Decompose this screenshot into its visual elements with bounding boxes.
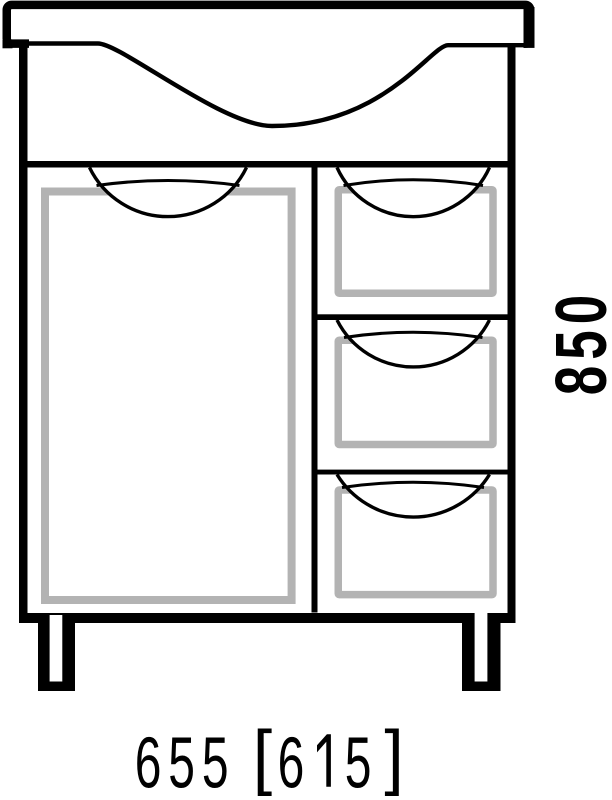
svg-text:[: [ (253, 717, 273, 797)
svg-text:6: 6 (278, 723, 305, 800)
svg-text:850: 850 (542, 289, 612, 396)
svg-text:5: 5 (345, 723, 372, 800)
svg-text:]: ] (384, 717, 403, 797)
svg-text:655: 655 (135, 723, 236, 800)
